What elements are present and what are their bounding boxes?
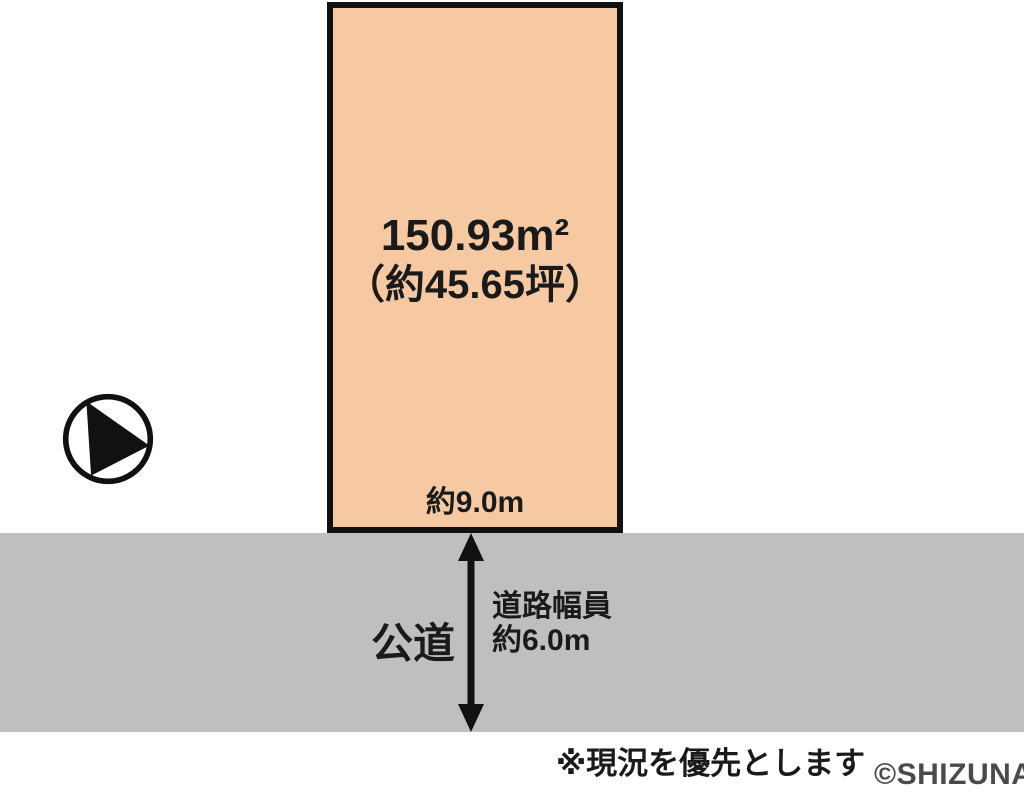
road-width-label-line1: 道路幅員 [492, 590, 612, 624]
watermark-text: ©SHIZUNAVI [874, 758, 1024, 792]
road-width-arrow [451, 533, 491, 732]
compass-svg [61, 392, 155, 486]
road-width-arrow-svg [451, 533, 491, 732]
road-width-label: 道路幅員 約6.0m [492, 590, 612, 658]
compass-north-arrow-icon [61, 392, 155, 486]
road-width-label-line2: 約6.0m [492, 624, 612, 658]
land-plot-diagram: 150.93m² （約45.65坪） 約9.0m 公道 道路幅員 約6.0m ※… [0, 0, 1024, 793]
plot-area-sqm: 150.93m² [333, 211, 617, 261]
plot-area-tsubo: （約45.65坪） [333, 261, 617, 309]
land-plot-rectangle: 150.93m² （約45.65坪） 約9.0m [327, 2, 623, 533]
disclaimer-note: ※現況を優先とします [556, 738, 865, 783]
frontage-dimension-label: 約9.0m [333, 477, 617, 521]
road-name-label: 公道 [300, 610, 455, 671]
plot-area-label: 150.93m² （約45.65坪） [333, 211, 617, 309]
